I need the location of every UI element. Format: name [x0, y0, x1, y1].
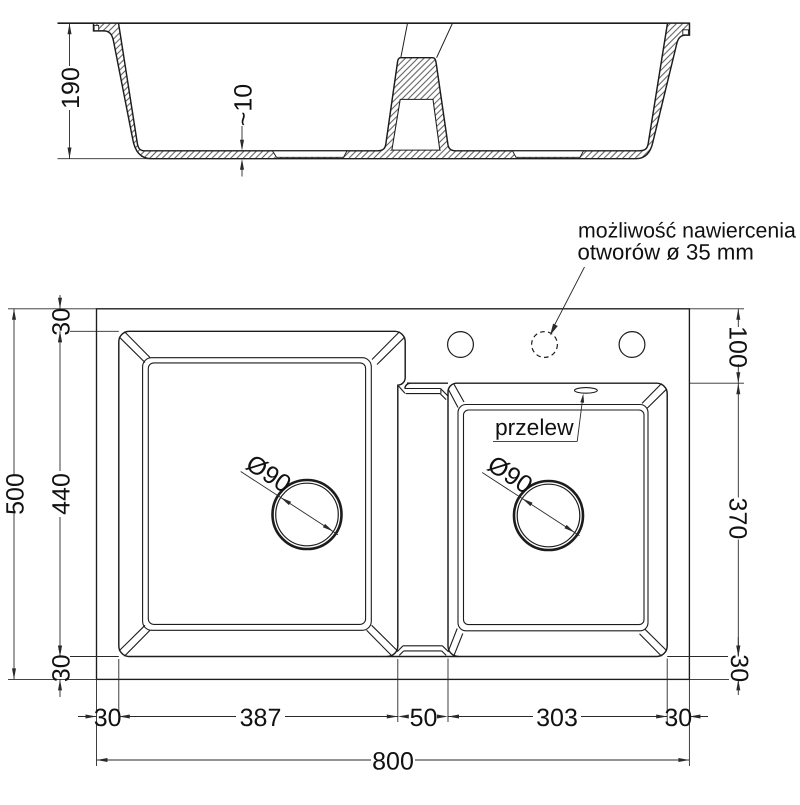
svg-text:100: 100	[723, 326, 751, 368]
svg-text:30: 30	[94, 704, 122, 732]
svg-text:370: 370	[723, 498, 751, 540]
svg-text:otworów ø 35 mm: otworów ø 35 mm	[578, 240, 754, 265]
svg-text:50: 50	[410, 704, 438, 732]
svg-text:800: 800	[372, 748, 414, 776]
svg-text:Ø90: Ø90	[241, 449, 296, 498]
svg-text:387: 387	[240, 704, 282, 732]
svg-text:30: 30	[48, 654, 76, 682]
svg-text:303: 303	[536, 704, 578, 732]
svg-text:30: 30	[664, 704, 692, 732]
svg-text:190: 190	[57, 67, 85, 109]
svg-text:30: 30	[48, 308, 76, 336]
svg-text:przelew: przelew	[495, 414, 574, 440]
svg-text:500: 500	[2, 473, 30, 515]
svg-text:~10: ~10	[230, 84, 258, 126]
svg-text:440: 440	[48, 473, 76, 515]
svg-text:Ø90: Ø90	[483, 450, 538, 499]
svg-text:30: 30	[725, 654, 753, 682]
